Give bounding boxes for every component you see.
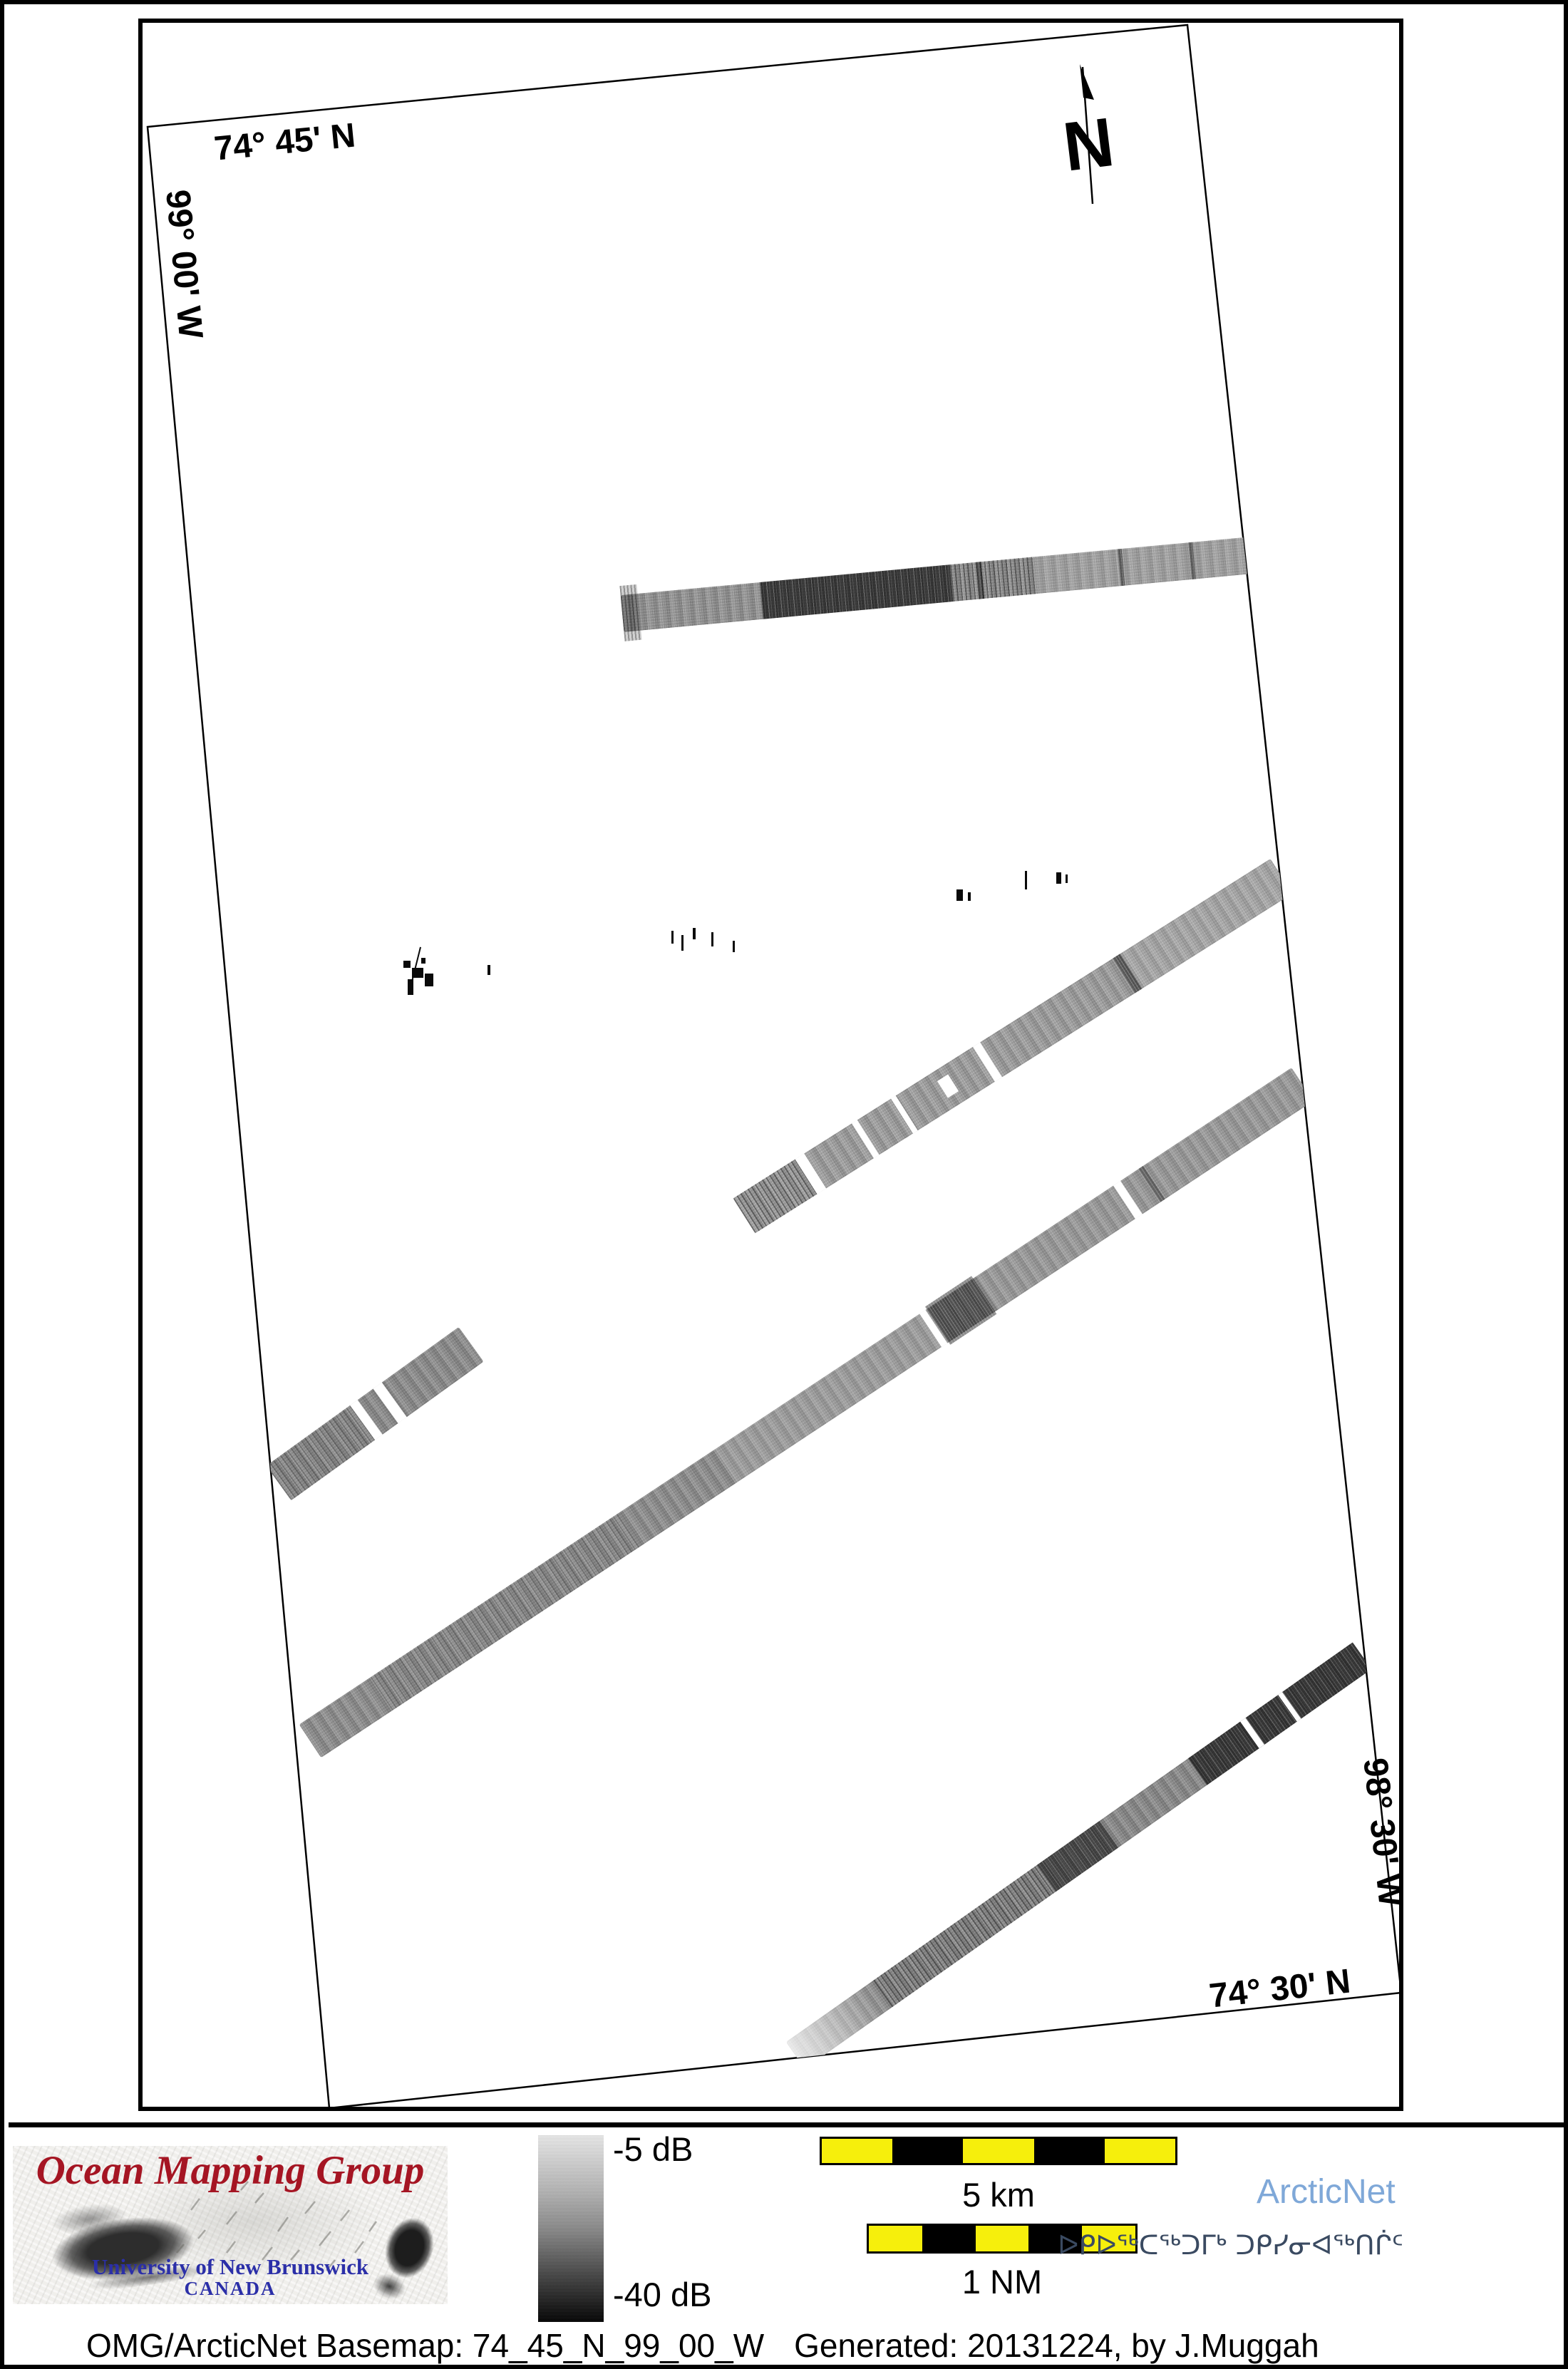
arcticnet-wordmark: ArcticNet bbox=[1257, 2172, 1396, 2211]
colorbar-max-label: -5 dB bbox=[613, 2130, 693, 2169]
caption: OMG/ArcticNet Basemap: 74_45_N_99_00_WGe… bbox=[86, 2326, 1319, 2365]
scalebar-km-label: 5 km bbox=[820, 2175, 1177, 2214]
caption-basemap: OMG/ArcticNet Basemap: 74_45_N_99_00_W bbox=[86, 2327, 764, 2364]
scalebar-km bbox=[820, 2137, 1177, 2165]
scalebar-nm-label: 1 NM bbox=[867, 2262, 1138, 2301]
north-arrow-icon: N bbox=[1038, 56, 1138, 212]
north-arrow-label: N bbox=[1059, 103, 1118, 186]
omg-logo: Ocean Mapping Group University of New Br… bbox=[13, 2146, 448, 2304]
arcticnet-inuktitut-label: ᐅᑭᐅᖅᑕᖅᑐᒥᒃ ᑐᑭᓯᓂᐊᖅᑎᒌᑦ bbox=[1031, 2229, 1403, 2261]
footer-divider bbox=[9, 2122, 1568, 2127]
omg-logo-title: Ocean Mapping Group bbox=[13, 2147, 448, 2194]
sonar-swath-middle bbox=[733, 859, 1293, 1234]
sonar-swath-top bbox=[621, 537, 1249, 632]
colorbar-min-label: -40 dB bbox=[613, 2275, 711, 2314]
sonar-swath-left bbox=[266, 1327, 483, 1500]
basemap-page: 74° 45' N 99° 00' W 98° 30' W 74° 30' N … bbox=[0, 0, 1568, 2369]
canada-label: CANADA bbox=[13, 2278, 448, 2300]
unb-label: University of New Brunswick bbox=[13, 2254, 448, 2280]
backscatter-colorbar bbox=[538, 2135, 604, 2322]
caption-generated: Generated: 20131224, by J.Muggah bbox=[794, 2327, 1319, 2364]
